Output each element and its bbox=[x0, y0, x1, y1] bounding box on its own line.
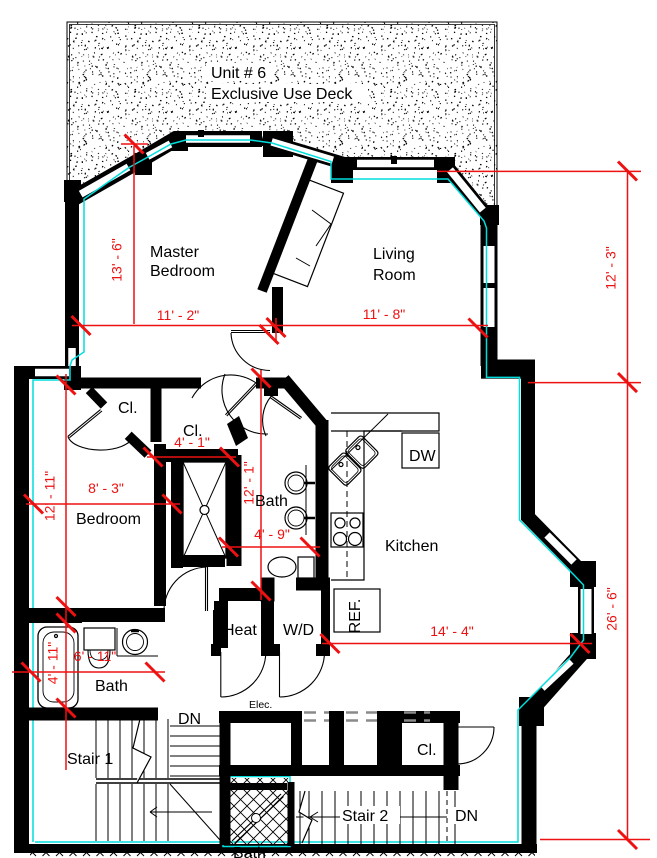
svg-text:Stair 2: Stair 2 bbox=[342, 808, 388, 825]
svg-text:Stair 1: Stair 1 bbox=[67, 751, 113, 768]
svg-text:Heat: Heat bbox=[223, 622, 257, 639]
svg-text:8' - 3": 8' - 3" bbox=[88, 480, 124, 496]
svg-text:Bedroom: Bedroom bbox=[150, 263, 215, 280]
svg-text:Room: Room bbox=[373, 267, 416, 284]
svg-text:Unit # 6: Unit # 6 bbox=[211, 65, 266, 82]
svg-text:Bedroom: Bedroom bbox=[76, 511, 141, 528]
svg-text:4' - 11": 4' - 11" bbox=[45, 642, 61, 684]
svg-text:Master: Master bbox=[150, 244, 200, 261]
svg-text:W/D: W/D bbox=[283, 622, 314, 639]
svg-text:Cl.: Cl. bbox=[417, 742, 437, 759]
svg-text:14' - 4": 14' - 4" bbox=[430, 623, 473, 639]
svg-text:Elec.: Elec. bbox=[249, 699, 272, 711]
svg-text:REF.: REF. bbox=[347, 599, 364, 634]
svg-text:6' - 11": 6' - 11" bbox=[74, 648, 116, 664]
svg-text:26' - 6": 26' - 6" bbox=[604, 587, 620, 630]
svg-text:Living: Living bbox=[373, 246, 415, 263]
svg-text:Bath: Bath bbox=[255, 493, 288, 510]
svg-text:Cl.: Cl. bbox=[183, 423, 203, 440]
svg-text:12' - 11": 12' - 11" bbox=[42, 471, 58, 521]
svg-text:4' - 9": 4' - 9" bbox=[254, 526, 290, 542]
svg-text:DN: DN bbox=[178, 711, 201, 728]
svg-text:Cl.: Cl. bbox=[118, 400, 138, 417]
svg-text:DN: DN bbox=[455, 808, 478, 825]
svg-text:Bath: Bath bbox=[95, 678, 128, 695]
svg-text:Kitchen: Kitchen bbox=[385, 538, 438, 555]
svg-text:Exclusive Use Deck: Exclusive Use Deck bbox=[211, 86, 353, 103]
svg-text:11' - 8": 11' - 8" bbox=[363, 306, 405, 322]
svg-text:Bath: Bath bbox=[233, 845, 266, 858]
svg-text:12' - 3": 12' - 3" bbox=[603, 246, 619, 289]
svg-text:11' - 2": 11' - 2" bbox=[157, 307, 199, 323]
svg-text:DW: DW bbox=[409, 448, 437, 465]
svg-text:13' - 6": 13' - 6" bbox=[109, 238, 125, 281]
